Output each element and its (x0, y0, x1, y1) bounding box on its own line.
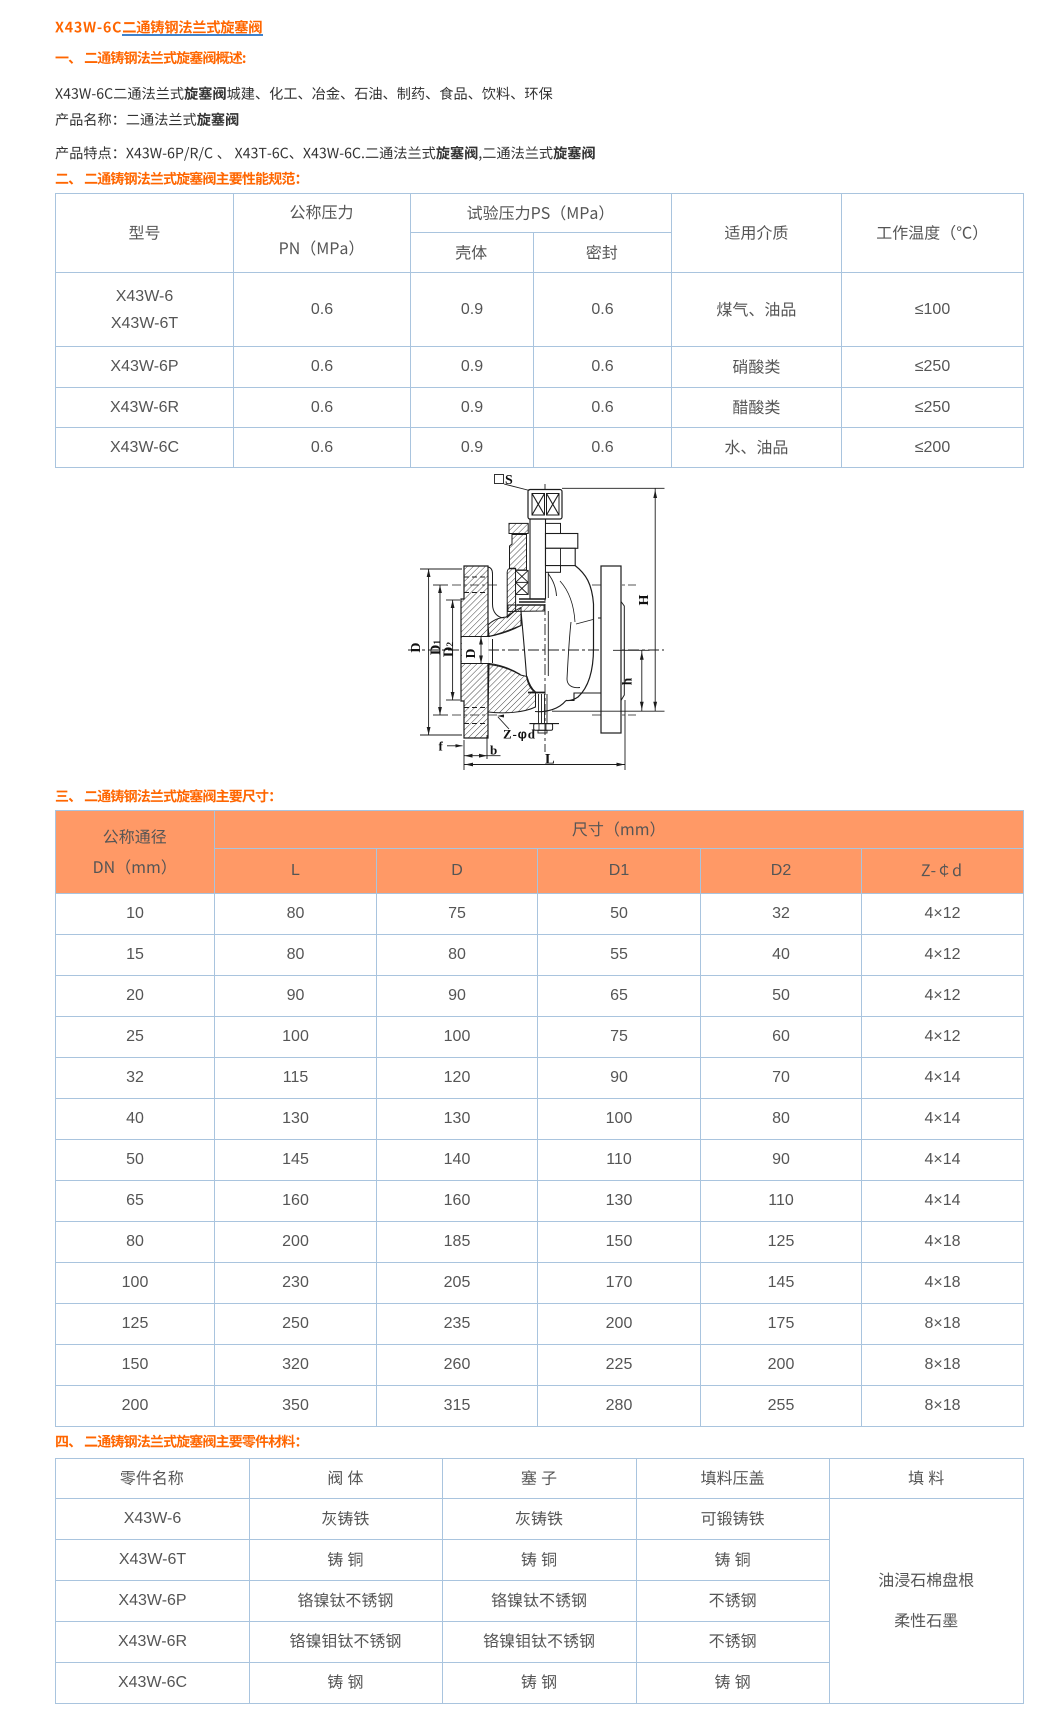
svg-text:L: L (545, 752, 555, 768)
svg-text:h: h (620, 677, 635, 685)
svg-text:Z-φd: Z-φd (503, 727, 536, 742)
svg-text:D: D (463, 648, 478, 658)
svg-text:f: f (439, 739, 444, 754)
svg-text:D: D (409, 642, 424, 652)
svg-text:b: b (490, 743, 497, 758)
svg-text:D2: D2 (441, 642, 457, 657)
svg-text:H: H (637, 594, 652, 605)
svg-text:S: S (505, 473, 513, 488)
